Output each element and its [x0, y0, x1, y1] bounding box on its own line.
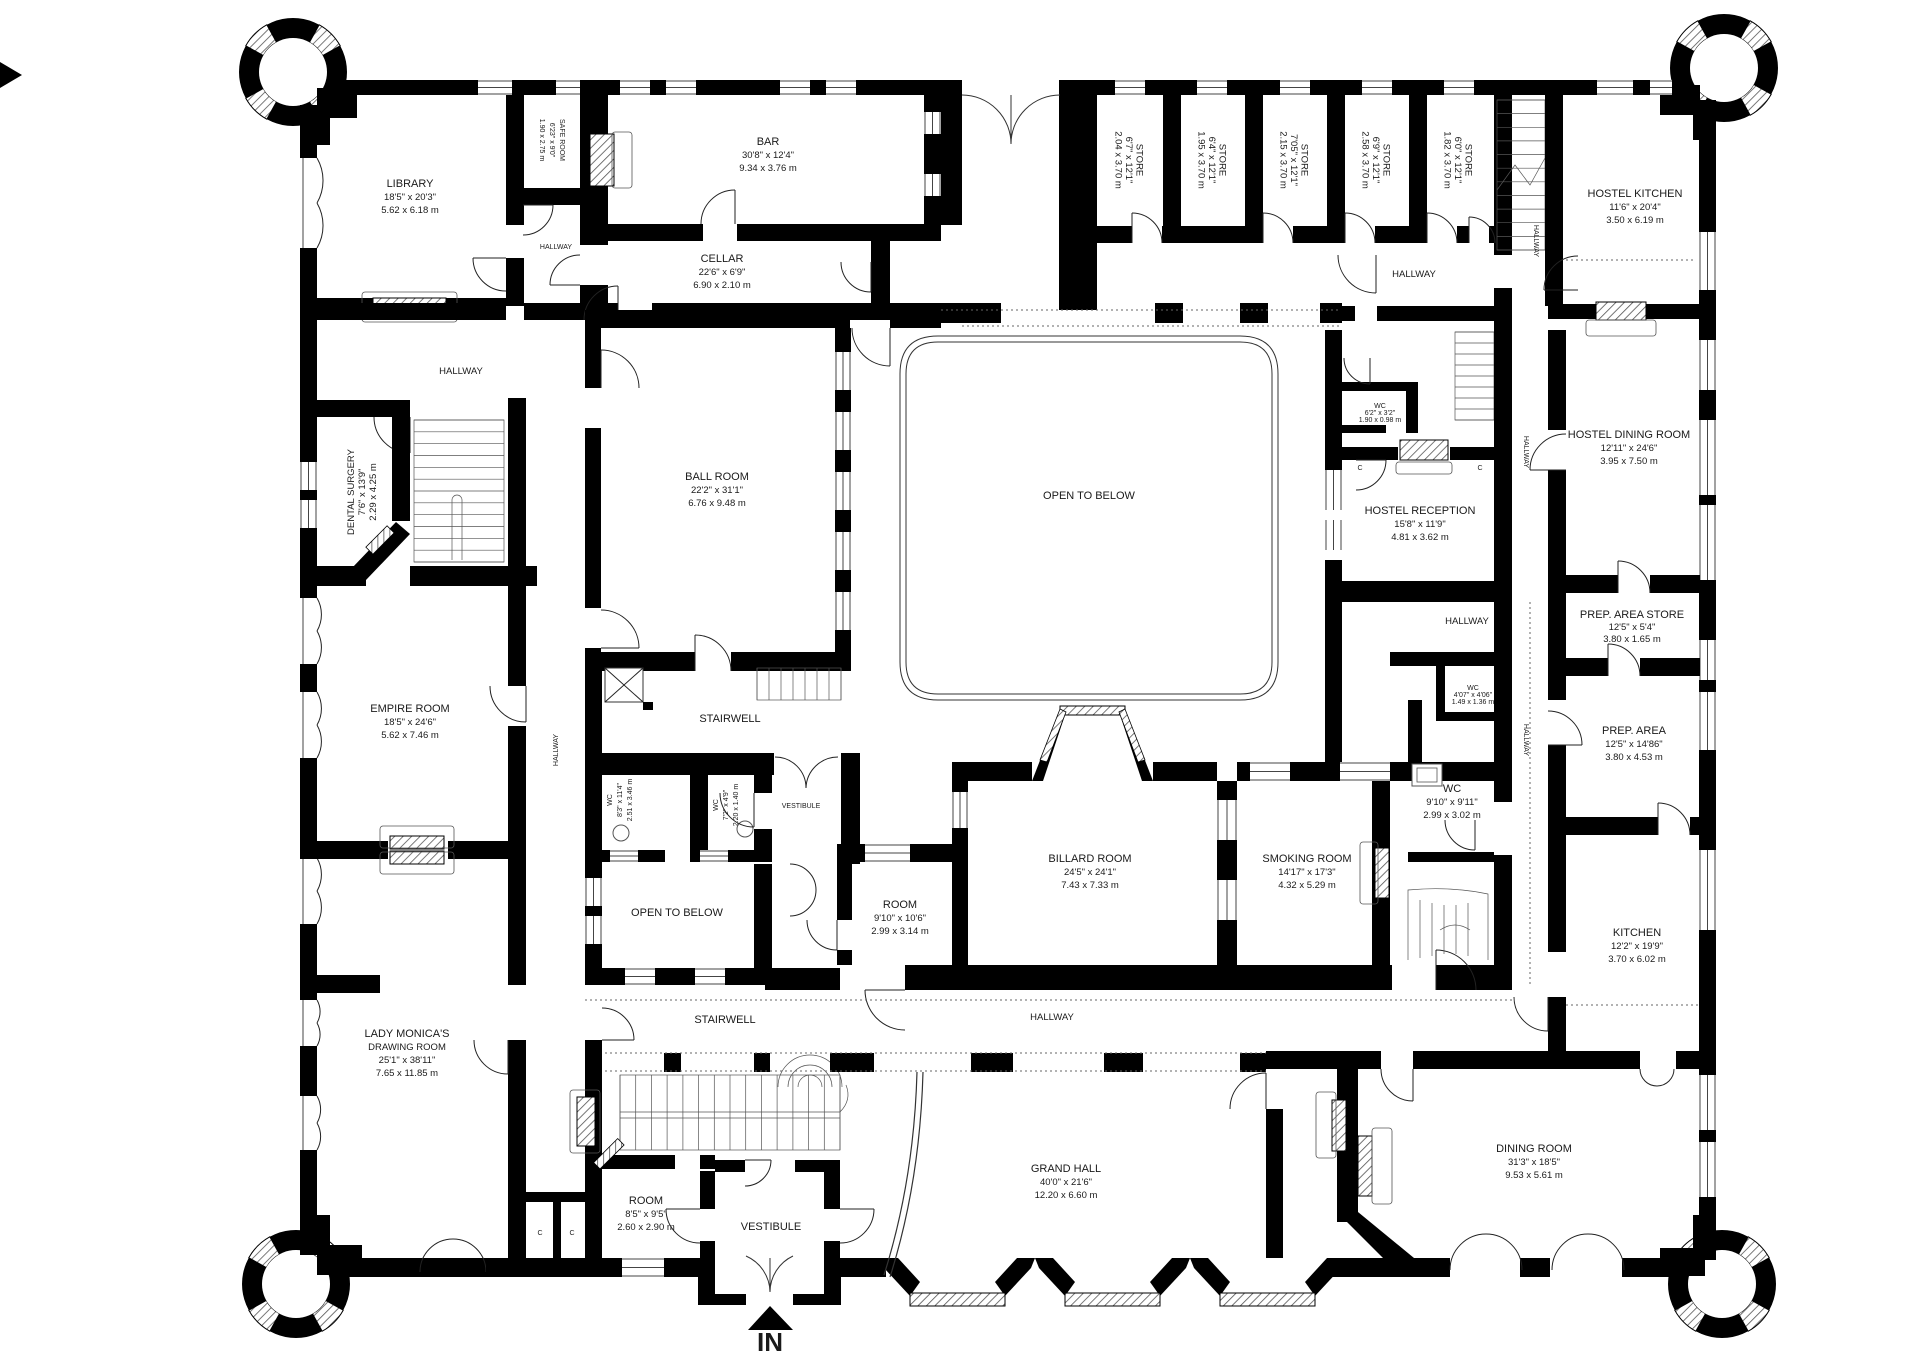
svg-text:2.29 x 4.25 m: 2.29 x 4.25 m — [368, 463, 379, 521]
svg-text:7.65 x 11.85 m: 7.65 x 11.85 m — [376, 1068, 438, 1079]
svg-text:C: C — [569, 1230, 574, 1237]
svg-text:VESTIBULE: VESTIBULE — [741, 1221, 802, 1233]
svg-text:9.53 x 5.61 m: 9.53 x 5.61 m — [1505, 1170, 1563, 1181]
svg-text:HALLWAY: HALLWAY — [1392, 269, 1436, 280]
svg-text:12.20 x 6.60 m: 12.20 x 6.60 m — [1035, 1190, 1098, 1201]
svg-text:12'5" x 14'86": 12'5" x 14'86" — [1605, 739, 1662, 750]
svg-text:6'4" x 12'1": 6'4" x 12'1" — [1206, 137, 1217, 184]
svg-text:BALL ROOM: BALL ROOM — [685, 471, 749, 483]
svg-text:15'8" x 11'9": 15'8" x 11'9" — [1394, 519, 1445, 530]
svg-text:HALLWAY: HALLWAY — [553, 734, 560, 766]
svg-text:6'2" x 3'2": 6'2" x 3'2" — [1365, 410, 1396, 417]
svg-text:12'2" x 19'9": 12'2" x 19'9" — [1611, 941, 1663, 952]
svg-text:8'5" x 9'5": 8'5" x 9'5" — [625, 1209, 667, 1220]
svg-text:HOSTEL KITCHEN: HOSTEL KITCHEN — [1588, 188, 1683, 200]
svg-text:4'07" x 4'06": 4'07" x 4'06" — [1454, 692, 1493, 699]
svg-text:14'17" x 17'3": 14'17" x 17'3" — [1278, 867, 1335, 878]
svg-text:5.62 x 6.18 m: 5.62 x 6.18 m — [381, 205, 439, 216]
svg-text:HOSTEL DINING ROOM: HOSTEL DINING ROOM — [1568, 429, 1690, 441]
svg-text:STORE: STORE — [1217, 144, 1228, 177]
svg-text:HALLWAY: HALLWAY — [540, 244, 572, 251]
svg-text:CELLAR: CELLAR — [701, 253, 744, 265]
svg-text:2.15 x 3.70 m: 2.15 x 3.70 m — [1278, 131, 1289, 189]
svg-text:WC: WC — [1374, 403, 1386, 410]
svg-text:2.58 x 3.70 m: 2.58 x 3.70 m — [1360, 131, 1371, 189]
svg-text:WC: WC — [607, 794, 614, 806]
svg-text:C: C — [537, 1230, 542, 1237]
svg-text:VESTIBULE: VESTIBULE — [782, 803, 821, 810]
svg-text:12'5" x 5'4": 12'5" x 5'4" — [1609, 622, 1656, 633]
svg-text:WC: WC — [713, 799, 720, 811]
svg-text:STORE: STORE — [1299, 144, 1310, 177]
svg-text:1.49 x 1.36 m: 1.49 x 1.36 m — [1452, 699, 1495, 706]
svg-text:12'11" x 24'6": 12'11" x 24'6" — [1601, 443, 1658, 454]
svg-text:24'5" x 24'1": 24'5" x 24'1" — [1064, 867, 1116, 878]
svg-text:C: C — [1477, 465, 1482, 472]
svg-text:BAR: BAR — [757, 136, 780, 148]
svg-text:6'23" x 9'0": 6'23" x 9'0" — [548, 123, 555, 158]
svg-text:9'10" x 10'6": 9'10" x 10'6" — [874, 913, 926, 924]
svg-text:7'6" x 13'9": 7'6" x 13'9" — [357, 469, 368, 516]
svg-text:DINING ROOM: DINING ROOM — [1496, 1143, 1572, 1155]
svg-text:EMPIRE ROOM: EMPIRE ROOM — [370, 703, 449, 715]
svg-text:2.04 x 3.70 m: 2.04 x 3.70 m — [1113, 131, 1124, 189]
svg-text:6'9" x 12'1": 6'9" x 12'1" — [1370, 137, 1381, 184]
svg-text:31'3" x 18'5": 31'3" x 18'5" — [1508, 1157, 1560, 1168]
svg-text:PREP. AREA: PREP. AREA — [1602, 725, 1667, 737]
svg-text:18'5" x 20'3": 18'5" x 20'3" — [384, 192, 436, 203]
svg-text:9.34 x 3.76 m: 9.34 x 3.76 m — [739, 163, 797, 174]
svg-text:22'6" x 6'9": 22'6" x 6'9" — [699, 267, 746, 278]
svg-text:25'1" x 38'11": 25'1" x 38'11" — [379, 1055, 436, 1066]
svg-text:ROOM: ROOM — [883, 899, 917, 911]
svg-text:1.90 x 2.75 m: 1.90 x 2.75 m — [538, 119, 545, 162]
svg-text:2.99 x 3.14 m: 2.99 x 3.14 m — [871, 926, 929, 937]
svg-text:STORE: STORE — [1463, 144, 1474, 177]
svg-text:OPEN TO BELOW: OPEN TO BELOW — [631, 907, 724, 919]
svg-text:IN: IN — [757, 1327, 783, 1353]
svg-text:WC: WC — [1443, 783, 1461, 795]
svg-text:1.82 x 3.70 m: 1.82 x 3.70 m — [1442, 131, 1453, 189]
svg-text:HOSTEL RECEPTION: HOSTEL RECEPTION — [1365, 505, 1476, 517]
svg-text:PREP. AREA STORE: PREP. AREA STORE — [1580, 609, 1684, 621]
svg-text:LADY MONICA'S: LADY MONICA'S — [364, 1028, 449, 1040]
svg-text:SAFE ROOM: SAFE ROOM — [558, 119, 565, 161]
svg-text:HALLWAY: HALLWAY — [1522, 436, 1529, 468]
svg-text:OPEN TO BELOW: OPEN TO BELOW — [1043, 490, 1136, 502]
svg-text:C: C — [1357, 465, 1362, 472]
svg-text:3.70 x 6.02 m: 3.70 x 6.02 m — [1608, 954, 1666, 965]
svg-text:STAIRWELL: STAIRWELL — [694, 1014, 755, 1026]
svg-text:DRAWING ROOM: DRAWING ROOM — [368, 1042, 446, 1053]
svg-text:3.80 x 4.53 m: 3.80 x 4.53 m — [1605, 752, 1663, 763]
svg-text:3.50 x 6.19 m: 3.50 x 6.19 m — [1606, 215, 1664, 226]
svg-text:18'5" x 24'6": 18'5" x 24'6" — [384, 717, 436, 728]
svg-text:HALLWAY: HALLWAY — [1532, 225, 1539, 257]
svg-text:6'7" x 12'1": 6'7" x 12'1" — [1123, 137, 1134, 184]
svg-text:BILLARD ROOM: BILLARD ROOM — [1048, 853, 1131, 865]
svg-text:HALLWAY: HALLWAY — [1445, 616, 1489, 627]
svg-text:LIBRARY: LIBRARY — [387, 178, 435, 190]
svg-text:6.90 x 2.10 m: 6.90 x 2.10 m — [693, 280, 751, 291]
svg-text:7.43 x 7.33 m: 7.43 x 7.33 m — [1061, 880, 1119, 891]
svg-text:2.20 x 1.40 m: 2.20 x 1.40 m — [733, 784, 740, 827]
svg-text:WC: WC — [1467, 685, 1479, 692]
svg-text:STAIRWELL: STAIRWELL — [699, 713, 760, 725]
svg-text:30'8" x 12'4": 30'8" x 12'4" — [742, 150, 794, 161]
svg-text:HALLWAY: HALLWAY — [1030, 1012, 1074, 1023]
svg-text:DENTAL SURGERY: DENTAL SURGERY — [346, 448, 357, 535]
svg-text:4.32 x 5.29 m: 4.32 x 5.29 m — [1278, 880, 1336, 891]
svg-text:STORE: STORE — [1134, 144, 1145, 177]
svg-text:SMOKING ROOM: SMOKING ROOM — [1262, 853, 1351, 865]
svg-text:1.90 x 0.98 m: 1.90 x 0.98 m — [1359, 417, 1402, 424]
svg-text:2.60 x 2.90 m: 2.60 x 2.90 m — [617, 1222, 675, 1233]
svg-text:7'05" x 12'1": 7'05" x 12'1" — [1288, 134, 1299, 186]
svg-text:40'0" x 21'6": 40'0" x 21'6" — [1040, 1177, 1092, 1188]
svg-text:HALLWAY: HALLWAY — [1522, 724, 1529, 756]
svg-text:STORE: STORE — [1381, 144, 1392, 177]
svg-text:9'10" x 9'11": 9'10" x 9'11" — [1426, 797, 1477, 808]
svg-text:GRAND HALL: GRAND HALL — [1031, 1163, 1101, 1175]
svg-text:1.95 x 3.70 m: 1.95 x 3.70 m — [1196, 131, 1207, 189]
svg-text:2.99 x 3.02 m: 2.99 x 3.02 m — [1423, 810, 1481, 821]
svg-text:3.95 x 7.50 m: 3.95 x 7.50 m — [1600, 456, 1658, 467]
svg-text:6'0" x 12'1": 6'0" x 12'1" — [1452, 137, 1463, 184]
svg-text:8'3" x 11'4": 8'3" x 11'4" — [617, 782, 624, 816]
svg-text:4.81 x 3.62 m: 4.81 x 3.62 m — [1391, 532, 1449, 543]
svg-text:3.80 x 1.65 m: 3.80 x 1.65 m — [1603, 634, 1661, 645]
svg-text:22'2" x 31'1": 22'2" x 31'1" — [691, 485, 743, 496]
svg-text:KITCHEN: KITCHEN — [1613, 927, 1661, 939]
svg-text:5.62 x 7.46 m: 5.62 x 7.46 m — [381, 730, 439, 741]
svg-text:2.51 x 3.46 m: 2.51 x 3.46 m — [627, 779, 634, 822]
svg-text:11'6" x 20'4": 11'6" x 20'4" — [1609, 202, 1660, 213]
svg-text:ROOM: ROOM — [629, 1195, 663, 1207]
svg-text:6.76 x 9.48 m: 6.76 x 9.48 m — [688, 498, 746, 509]
svg-text:HALLWAY: HALLWAY — [439, 366, 483, 377]
